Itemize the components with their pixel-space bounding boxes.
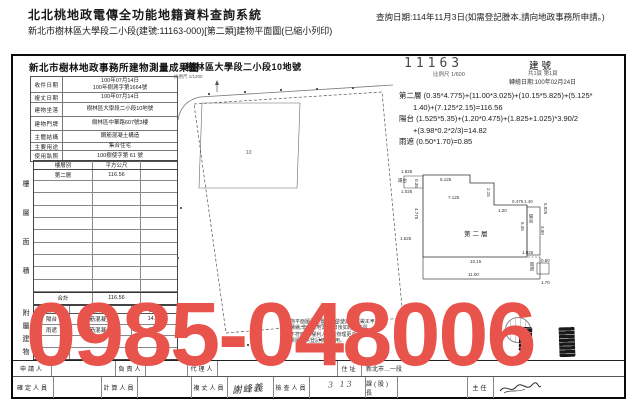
dim-label: 5.825 xyxy=(543,203,548,214)
north-arrow-icon xyxy=(215,80,219,85)
table-row: 建物坐落 樹林區大學段二小段10地號 xyxy=(31,103,177,117)
table-row: 主要用途 集合住宅 xyxy=(31,143,177,151)
table-row xyxy=(34,206,177,218)
dim-label: 1.025 xyxy=(522,250,533,255)
rect-seal-icon xyxy=(558,327,575,358)
table-row xyxy=(34,230,177,242)
dim-label: 5.125 xyxy=(440,177,451,182)
row-label: 收件日期 xyxy=(31,77,63,92)
dim-label: 10.15 xyxy=(470,259,481,264)
row-value: 集合住宅 xyxy=(109,143,131,149)
dim-label: 3.90 xyxy=(540,226,545,235)
dim-label: 1.20 xyxy=(498,208,507,213)
table-row: 建物門牌 樹林區中華路607號3樓 xyxy=(31,117,177,131)
row-value-2: 100年樹測字第1664號 xyxy=(93,85,147,91)
table-row xyxy=(34,243,177,255)
query-date-note: 查詢日期:114年11月3日(如需登記謄本,請向地政事務所申請。) xyxy=(376,11,605,23)
system-title: 北北桃地政電傳全功能地籍資料查詢系統 xyxy=(28,6,262,23)
row-label: 建物坐落 xyxy=(31,103,63,116)
building-info-table: 收件日期 100年07月14日 100年樹測字第1664號 複丈日期 100年0… xyxy=(30,76,178,162)
calc-line: 陽台 (1.525*5.35)+(1.20*0.475)+(1.825+1.02… xyxy=(399,113,635,125)
table-row xyxy=(34,255,177,267)
site-plan-scale-note: 比例尺 1/1200 xyxy=(174,74,203,80)
row-value: 樹林區大學段二小段10地號 xyxy=(87,106,154,112)
row-value: 100年07月14日 xyxy=(101,94,139,100)
row-label: 建物門牌 xyxy=(31,117,63,130)
floor-area-side-label: 樓層面積 xyxy=(20,180,30,296)
row-value: 100樹使字第 61 號 xyxy=(97,153,143,159)
table-row xyxy=(34,193,177,205)
dim-label: 0.50 xyxy=(541,258,550,263)
building-number-stamp: 11163 xyxy=(404,56,463,71)
calc-line: 雨遮 (0.50*1.70)=0.85 xyxy=(399,136,635,148)
row-label: 主體結構 xyxy=(31,131,63,142)
room-label: 第二層 xyxy=(464,228,490,238)
document-subtitle: 新北市樹林區大學段二小段(建號:11163-000)[第二類]建物平面圖(已縮小… xyxy=(28,24,332,37)
row-label: 複丈日期 xyxy=(31,93,63,102)
floor-area-value: 116.56 xyxy=(93,170,141,180)
balcony-left-label: 陽台 xyxy=(398,178,407,184)
dim-label: 11.00 xyxy=(468,272,479,277)
floor-name: 第二層 xyxy=(34,170,93,180)
table-row: 收件日期 100年07月14日 100年樹測字第1664號 xyxy=(31,77,177,93)
redraw-date: 轉繪日期:100年02月24日 xyxy=(509,77,576,86)
row-value: 樹林區中華路607號3樓 xyxy=(92,120,148,126)
table-row xyxy=(34,218,177,230)
canopy-label: 雨遮 xyxy=(529,262,535,271)
dim-label: 1.40 xyxy=(524,199,533,204)
balcony-right-label: 陽台 xyxy=(528,214,534,223)
dim-label: 0.475 xyxy=(512,199,523,204)
calc-line: 第二層 (0.35*4.775)+(11.00*3.025)+(10.15*5.… xyxy=(399,90,635,102)
dim-label: 1.70 xyxy=(541,280,550,285)
dim-label: 1.025 xyxy=(401,189,412,194)
column-header-floor: 樓層別 xyxy=(34,161,93,169)
row-value: 鋼筋混凝土構造 xyxy=(101,133,140,139)
calc-line: 1.40)+(7.125*2.15)=116.56 xyxy=(399,102,635,114)
table-row: 第二層 116.56 xyxy=(34,170,177,181)
scale-note: 比例尺 1/600 xyxy=(433,70,465,78)
dim-label: 0.35 xyxy=(414,179,419,188)
lot-number-label: 10 xyxy=(246,150,252,156)
dim-label: 1.525 xyxy=(400,236,411,241)
table-row: 主體結構 鋼筋混凝土構造 xyxy=(31,131,177,143)
table-row: 複丈日期 100年07月14日 xyxy=(31,93,177,103)
area-calculation-block: 第二層 (0.35*4.775)+(11.00*3.025)+(10.15*5.… xyxy=(399,90,635,148)
dim-label: 4.775 xyxy=(414,208,419,219)
floor-plan-labels: 1.825 陽台 1.025 5.125 7.125 2.15 0.475 1.… xyxy=(398,170,558,288)
floor-area-table: 樓層別 平方公尺 第二層 116.56 合計 116.56 xyxy=(33,160,178,305)
row-label: 主要用途 xyxy=(31,143,63,150)
dim-label: 5.35 xyxy=(520,222,525,231)
sheet-note: 共1頁 第1頁 xyxy=(528,69,558,77)
column-header-area: 平方公尺 xyxy=(93,161,141,169)
phone-number-watermark: 0985-048006 xyxy=(26,290,535,380)
table-header-row: 樓層別 平方公尺 xyxy=(34,161,177,170)
calc-line: +(3.98*0.2*2/3)=14.82 xyxy=(399,125,635,137)
dim-label: 7.125 xyxy=(448,195,459,200)
dim-label: 1.825 xyxy=(401,169,412,174)
table-row xyxy=(34,267,177,279)
dim-label: 2.15 xyxy=(486,188,491,197)
table-row xyxy=(34,181,177,193)
